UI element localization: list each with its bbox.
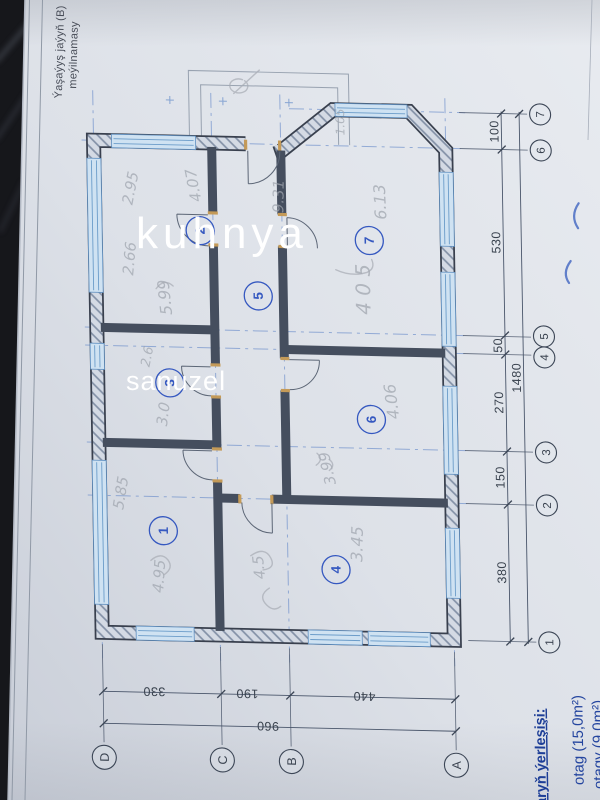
sheet-title-line2: meýilnamasy [67,21,81,89]
dim-right-seg-3: 270 [492,391,506,414]
pencil-note: 4.95 [149,559,169,594]
pencil-note: 4.5 [249,555,269,580]
pencil-note: 5.99 [154,279,177,316]
window-kitchen-left [87,158,103,292]
window-room7-right-a [439,172,454,246]
dim-right-seg-2: 50 [491,338,505,353]
pencil-note: 4 0 5 [351,264,376,315]
photo-canvas: Ýaşaýyş jaýyň (B) meýilnamasy [0,0,600,800]
window-room4-right [445,528,460,598]
notes-heading: aryň ýerleşişi: [532,708,550,800]
window-bath-left [90,343,104,369]
grid-row-label-6: 6 [536,147,548,154]
grid-row-label-3: 3 [541,449,553,456]
dim-bottom-seg-1: 190 [236,686,259,701]
window-room4-bottom-a [308,630,362,645]
window-room6-right [443,386,459,474]
grid-col-label-C: C [216,755,230,764]
window-room1-bottom [136,626,194,641]
notes-item-2: otagy (9,0m²) [589,700,600,790]
window-room7-right-b [441,272,456,346]
grid-col-label-B: B [285,757,299,766]
grid-col-label-D: D [98,753,112,762]
dim-right-seg-4: 150 [493,466,507,489]
pencil-note: 6.13 [370,184,391,220]
sheet-title-line1: Ýaşaýyş jaýyň (B) [52,5,67,98]
pencil-note: 3.0 [153,401,174,427]
wall-bath-room1 [103,442,215,445]
room-number-7: 7 [362,237,377,245]
notes-item-1: otag (15,0m²) [569,695,588,785]
bathroom-overlay-label: sanuzel [126,366,226,397]
window-room1-left [92,460,109,604]
floor-plan-photo: Ýaşaýyş jaýyň (B) meýilnamasy [0,0,600,800]
room-number-6: 6 [364,415,379,423]
room-number-5: 5 [251,292,266,300]
grid-row-label-5: 5 [539,333,551,340]
grid-row-label-1: 1 [544,639,556,646]
pencil-note: 3.45 [347,526,367,563]
room-number-4: 4 [328,565,343,573]
dim-bottom-seg-0: 330 [143,684,166,699]
kitchen-overlay-label: kuhnya [136,209,308,259]
window-kitchen-top [111,134,195,149]
room-number-1: 1 [156,526,171,534]
dim-bottom-total: 960 [256,719,279,734]
grid-row-label-7: 7 [535,111,547,118]
dim-right-seg-1: 530 [489,231,503,254]
dim-right-seg-5: 380 [495,561,509,584]
dim-bottom-seg-2: 440 [353,689,376,704]
wall-kitchen-bath [101,327,213,330]
dim-right-seg-0: 100 [487,120,501,143]
pencil-note: 1.05 [333,108,347,135]
grid-row-label-2: 2 [542,502,554,509]
dim-right-total: 1480 [509,363,524,393]
window-room4-bottom-b [368,631,430,646]
wall-room7-room6 [286,350,445,354]
grid-col-label-A: A [450,760,464,769]
grid-row-label-4: 4 [539,354,551,361]
